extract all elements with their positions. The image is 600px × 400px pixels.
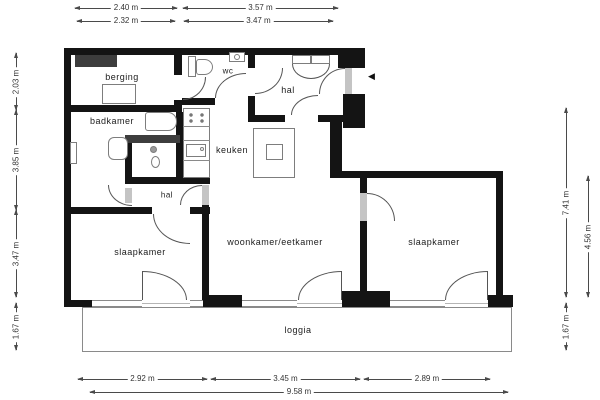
wall xyxy=(343,94,365,128)
dimension-bottom-2: 2.89 m xyxy=(364,379,490,380)
wall xyxy=(330,121,342,178)
door-arc xyxy=(183,77,206,100)
washbasin xyxy=(108,137,128,160)
door-arc xyxy=(255,68,283,94)
wall xyxy=(202,205,209,307)
toilet-bowl xyxy=(196,59,213,75)
door-threshold xyxy=(445,303,488,304)
room-label-slaapkamer-left: slaapkamer xyxy=(114,247,166,257)
wall xyxy=(125,177,210,184)
wall xyxy=(342,291,390,307)
door-arc xyxy=(180,185,202,205)
dimension-bottom-0: 2.92 m xyxy=(78,379,207,380)
wall xyxy=(174,48,182,75)
dimension-label: 2.92 m xyxy=(127,375,157,384)
shower-head-icon xyxy=(150,146,157,153)
counter-divider xyxy=(183,140,210,141)
window xyxy=(242,300,297,307)
door-jamb xyxy=(360,193,367,221)
door-leaf xyxy=(487,271,488,300)
door-arc xyxy=(153,214,190,244)
wall xyxy=(203,295,242,307)
dimension-left-0: 2.03 m xyxy=(16,53,17,110)
room-label-hal-inner: hal xyxy=(161,191,173,200)
drain-icon xyxy=(151,156,160,168)
wall xyxy=(248,48,255,68)
room-label-badkamer: badkamer xyxy=(90,116,134,126)
dimension-label: 2.03 m xyxy=(13,66,22,96)
dimension-label: 1.67 m xyxy=(563,311,572,341)
wall xyxy=(64,207,152,214)
dimension-right-1: 4.56 m xyxy=(588,176,589,297)
wall xyxy=(64,48,352,55)
dimension-top-3: 3.47 m xyxy=(184,21,333,22)
door-arc xyxy=(291,95,318,115)
toilet xyxy=(188,56,196,77)
wall xyxy=(360,178,367,193)
dimension-top-2: 2.32 m xyxy=(77,21,175,22)
wall xyxy=(64,48,71,307)
room-label-loggia: loggia xyxy=(284,325,311,335)
hob-icon xyxy=(184,110,209,125)
kitchen-tap-icon xyxy=(200,147,204,151)
dimension-right-0: 7.41 m xyxy=(566,108,567,297)
dimension-label: 2.32 m xyxy=(111,17,141,26)
wc-basin-tap-icon xyxy=(234,54,240,60)
wall xyxy=(496,178,503,298)
door-threshold xyxy=(297,303,342,304)
dimension-label: 1.67 m xyxy=(13,311,22,341)
door-leaf xyxy=(142,271,143,300)
door-threshold xyxy=(142,303,190,304)
hall-closet xyxy=(311,55,330,64)
closet-door-arc xyxy=(292,64,311,79)
dimension-label: 9.58 m xyxy=(284,388,314,397)
room-label-berging: berging xyxy=(105,72,139,82)
radiator xyxy=(70,142,77,164)
dimension-bottom-3: 9.58 m xyxy=(90,392,508,393)
dimension-left-2: 3.47 m xyxy=(16,210,17,297)
dimension-label: 3.47 m xyxy=(243,17,273,26)
dimension-label: 3.85 m xyxy=(13,145,22,175)
hall-closet xyxy=(292,55,311,64)
dimension-label: 3.57 m xyxy=(245,4,275,13)
wall xyxy=(64,300,92,307)
bathtub xyxy=(145,112,177,131)
dimension-top-1: 3.57 m xyxy=(183,8,338,9)
dimension-top-0: 2.40 m xyxy=(75,8,177,9)
door-leaf xyxy=(341,271,342,300)
door-arc xyxy=(445,271,488,300)
dimension-bottom-1: 3.45 m xyxy=(211,379,360,380)
room-label-hal-entrance: hal xyxy=(281,85,295,95)
dimension-label: 2.89 m xyxy=(412,375,442,384)
dimension-left-1: 3.85 m xyxy=(16,110,17,210)
wall xyxy=(248,115,285,122)
dimension-label: 2.40 m xyxy=(111,4,141,13)
room-label-woonkamer: woonkamer/eetkamer xyxy=(227,237,323,247)
washing-machine xyxy=(102,84,136,104)
kitchen-island-inset xyxy=(266,144,283,160)
door-jamb xyxy=(202,185,209,205)
wall xyxy=(176,112,183,182)
window xyxy=(390,300,445,307)
wall xyxy=(330,171,503,178)
shower-partition xyxy=(125,135,180,143)
dimension-label: 7.41 m xyxy=(563,187,572,217)
dimension-label: 3.47 m xyxy=(13,238,22,268)
door-arc xyxy=(367,193,395,221)
window xyxy=(92,300,142,307)
wall xyxy=(488,295,513,307)
wall xyxy=(338,48,365,68)
dimension-label: 3.45 m xyxy=(270,375,300,384)
room-label-keuken: keuken xyxy=(216,145,248,155)
counter-divider xyxy=(183,160,210,161)
door-arc xyxy=(142,271,187,300)
door-arc xyxy=(108,185,132,206)
door-jamb xyxy=(345,68,352,94)
wall xyxy=(64,105,182,112)
door-arc xyxy=(215,73,246,98)
counter-divider xyxy=(183,126,210,127)
door-arc xyxy=(298,271,342,300)
room-label-slaapkamer-right: slaapkamer xyxy=(408,237,460,247)
entrance-arrow-icon: ◀ xyxy=(368,72,375,81)
dimension-right-2: 1.67 m xyxy=(566,303,567,350)
wall xyxy=(318,115,352,122)
floor-plan: ◀ berging wc hal badkamer keuken hal sla… xyxy=(0,0,600,400)
room-label-wc: wc xyxy=(223,67,234,76)
window xyxy=(190,300,203,307)
built-in-closet xyxy=(75,55,117,67)
dimension-left-3: 1.67 m xyxy=(16,303,17,350)
dimension-label: 4.56 m xyxy=(585,221,594,251)
